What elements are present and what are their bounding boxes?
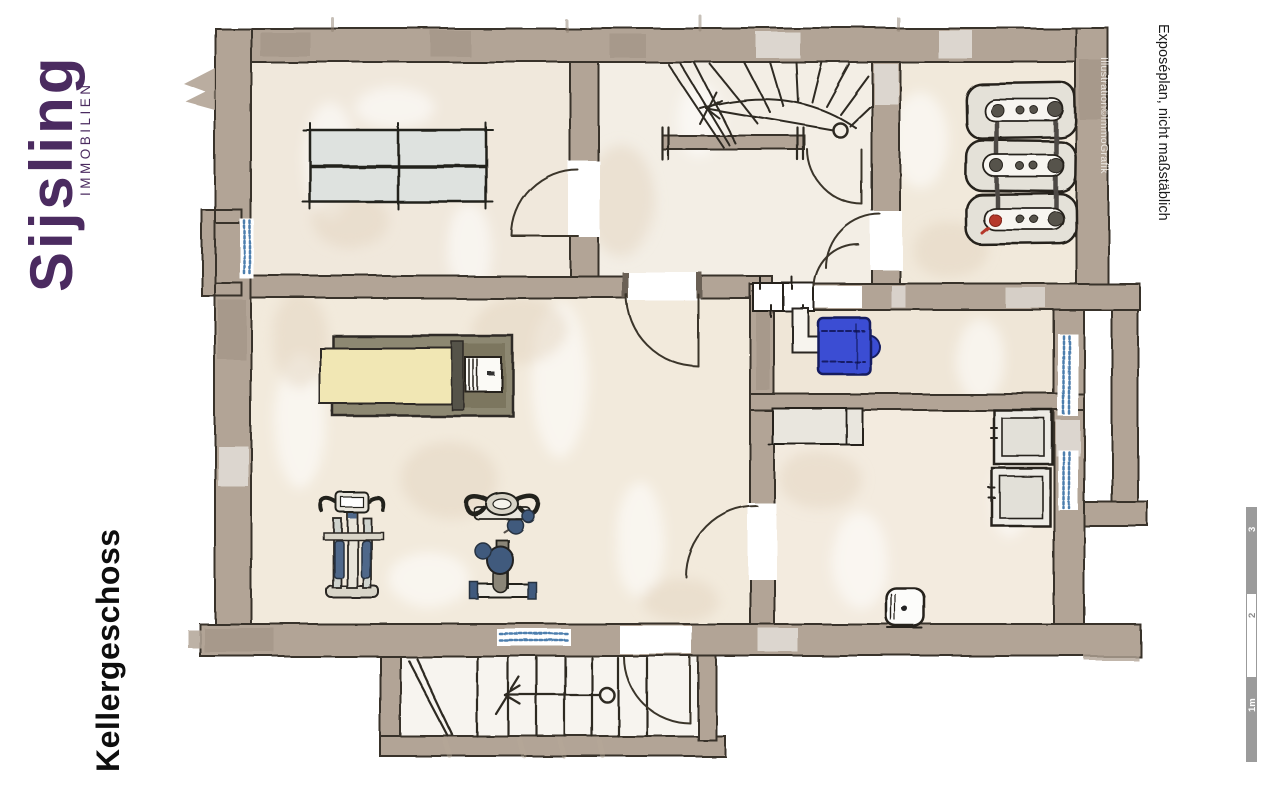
wash-basin	[886, 588, 924, 628]
logo-sijsling: Sijsling	[22, 55, 82, 292]
scale-label-2: 2	[1248, 613, 1258, 618]
illustration-credit: Illustration©ImmoGrafik	[1099, 57, 1110, 174]
scale-bar	[1246, 507, 1257, 762]
floor-name-label: Kellergeschoss	[92, 528, 124, 772]
wall-lightwell-bottom	[1084, 502, 1148, 526]
scale-segment-1	[1246, 678, 1257, 762]
scale-segment-2	[1246, 593, 1257, 678]
solarium-bed	[320, 336, 513, 416]
heating-unit	[966, 82, 1077, 245]
water-softener	[818, 318, 879, 374]
scale-segment-3	[1246, 507, 1257, 593]
dryer	[989, 468, 1050, 526]
exposé-page: Sijsling IMMOBILIEN Kellergeschoss Expos…	[0, 0, 1284, 794]
scale-label-3: 3	[1248, 527, 1258, 532]
window-right-upper	[1058, 334, 1078, 416]
floor-plan-canvas	[0, 0, 1284, 794]
washing-machine	[991, 410, 1052, 464]
window-right-lower	[1058, 450, 1078, 510]
wall-lightwell-right	[1112, 300, 1138, 506]
boiler-red-indicator	[989, 214, 1001, 226]
logo-immobilien: IMMOBILIEN	[79, 81, 93, 196]
laundry-counter	[768, 408, 862, 444]
scale-label-1m: 1m	[1248, 698, 1258, 712]
window-left	[240, 219, 254, 279]
wall-stairwell-bottom	[380, 736, 725, 756]
disclaimer-label: Exposéplan, nicht maßstäblich	[1156, 24, 1171, 221]
wall-stairwell-right	[698, 656, 716, 740]
wall-leftwell-left	[202, 210, 215, 296]
window-bottom	[497, 629, 571, 646]
table-tennis-table	[303, 123, 493, 209]
wall-top	[215, 28, 1108, 62]
